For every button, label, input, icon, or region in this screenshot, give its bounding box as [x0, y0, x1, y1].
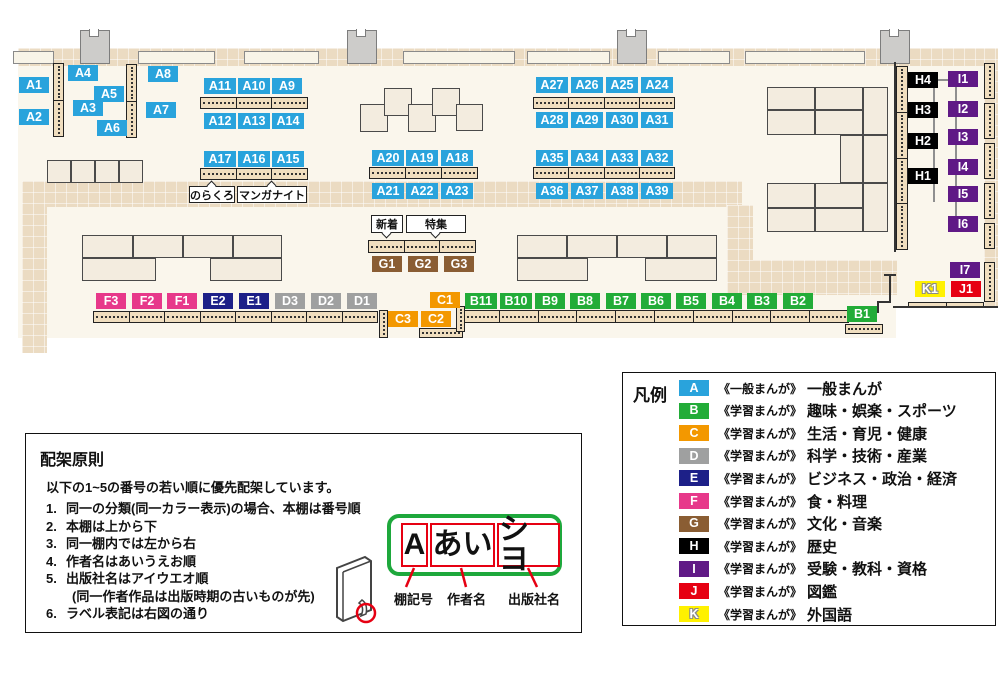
shelf-label-A34: A34 [571, 150, 603, 166]
legend-chip-J: J [679, 583, 709, 599]
shelf-note: のらくろ [189, 186, 235, 203]
bookshelf-strip [984, 262, 995, 302]
wall-line [889, 274, 891, 303]
walkway [22, 181, 47, 353]
principle-item: 5.出版社名はアイウエオ順 [46, 570, 361, 588]
principles-intro: 以下の1~5の番号の若い順に優先配架しています。 [46, 477, 339, 496]
shelf-label-A10: A10 [238, 78, 270, 94]
legend-chip-G: G [679, 516, 709, 532]
shelf-label-A3: A3 [73, 100, 103, 116]
reading-table [233, 235, 282, 258]
shelf-label-A37: A37 [571, 183, 603, 199]
bookshelf-segment [499, 311, 538, 322]
bookshelf-strip [126, 64, 137, 138]
shelf-label-A33: A33 [606, 150, 638, 166]
bookshelf-segment [271, 169, 307, 179]
reading-table [119, 160, 143, 183]
reading-table [767, 183, 815, 208]
legend-chip-I: I [679, 561, 709, 577]
shelf-label-A39: A39 [641, 183, 673, 199]
shelf-label-F1: F1 [167, 293, 197, 309]
shelf-label-I5: I5 [948, 186, 978, 202]
shelf-label-B2: B2 [783, 293, 813, 309]
shelf-label-A17: A17 [204, 151, 236, 167]
shelf-label-H2: H2 [908, 133, 938, 149]
bookshelf-strip [460, 310, 849, 323]
reading-table [47, 160, 71, 183]
legend-row-D: D《学習まんが》科学・技術・産業 [679, 447, 927, 465]
legend-qualifier: 《学習まんが》 [718, 447, 802, 464]
shelf-label-A38: A38 [606, 183, 638, 199]
bookshelf-segment [201, 169, 236, 179]
floor-mask [896, 308, 998, 340]
shelf-label-B3: B3 [747, 293, 777, 309]
wall-window [13, 51, 54, 64]
shelf-label-C3: C3 [388, 311, 418, 327]
shelf-label-C2: C2 [421, 311, 451, 327]
shelf-label-A18: A18 [441, 150, 473, 166]
reading-table [617, 235, 667, 258]
bookshelf-segment [534, 168, 568, 178]
principle-item: (同一作者作品は出版時期の古いものが先) [46, 588, 361, 606]
pillar [347, 30, 377, 64]
shelf-label-A21: A21 [372, 183, 404, 199]
wall-window [244, 51, 319, 64]
wall-line [894, 62, 896, 252]
shelf-label-I6: I6 [948, 216, 978, 232]
bookshelf-strip [379, 310, 388, 338]
legend-chip-H: H [679, 538, 709, 554]
reading-table [645, 258, 717, 281]
legend-qualifier: 《学習まんが》 [718, 515, 802, 532]
shelf-label-A31: A31 [641, 112, 673, 128]
bookshelf-segment [897, 203, 907, 249]
bookshelf-strip [984, 103, 995, 139]
shelf-label-A1: A1 [19, 77, 49, 93]
legend-category: 受験・教科・資格 [807, 558, 927, 579]
bookshelf-segment [236, 169, 272, 179]
reading-table [815, 110, 863, 135]
principle-item: 3.同一棚内では左から右 [46, 535, 361, 553]
shelf-label-F3: F3 [96, 293, 126, 309]
shelf-label-C1: C1 [430, 292, 460, 308]
shelf-label-A28: A28 [536, 112, 568, 128]
shelf-label-B5: B5 [676, 293, 706, 309]
wall-line [877, 301, 891, 303]
shelf-label-I3: I3 [948, 129, 978, 145]
reading-table [183, 235, 233, 258]
reading-table [767, 87, 815, 110]
shelf-label-A32: A32 [641, 150, 673, 166]
legend-qualifier: 《学習まんが》 [718, 560, 802, 577]
legend-qualifier: 《学習まんが》 [718, 583, 802, 600]
shelf-label-A2: A2 [19, 109, 49, 125]
bookshelf-segment [404, 241, 440, 252]
bookshelf-segment [271, 98, 307, 108]
shelf-label-A11: A11 [204, 78, 236, 94]
shelf-label-A9: A9 [272, 78, 302, 94]
legend-row-A: A《一般まんが》一般まんが [679, 379, 882, 397]
legend-panel: 凡例 A《一般まんが》一般まんがB《学習まんが》趣味・娯楽・スポーツC《学習まん… [622, 372, 996, 626]
library-floor-map-page: A1A2A4A5A3A6A8A7A11A10A9A12A13A14A17A16A… [0, 0, 1000, 700]
shelf-label-A25: A25 [606, 77, 638, 93]
shelf-label-A23: A23 [441, 183, 473, 199]
shelf-label-B7: B7 [606, 293, 636, 309]
shelf-label-B9: B9 [535, 293, 565, 309]
bookshelf-segment [380, 311, 387, 337]
principle-item: 6.ラベル表記は右図の通り [46, 605, 361, 623]
bookshelf-segment [236, 98, 272, 108]
shelf-label-J1: J1 [951, 281, 981, 297]
shelf-label-F2: F2 [132, 293, 162, 309]
legend-chip-D: D [679, 448, 709, 464]
shelf-label-A22: A22 [406, 183, 438, 199]
legend-row-C: C《学習まんが》生活・育児・健康 [679, 424, 927, 442]
principle-item: 2.本棚は上から下 [46, 518, 361, 536]
bookshelf-segment [164, 312, 200, 322]
shelf-label-A35: A35 [536, 150, 568, 166]
legend-chip-F: F [679, 493, 709, 509]
shelf-label-A24: A24 [641, 77, 673, 93]
shelf-label-B1: B1 [847, 306, 877, 322]
principles-list: 1.同一の分類(同一カラー表示)の場合、本棚は番号順2.本棚は上から下3.同一棚… [46, 500, 361, 623]
bookshelf-strip [984, 143, 995, 179]
bookshelf-segment [306, 312, 342, 322]
shelf-label-A16: A16 [238, 151, 270, 167]
bookshelf-segment [201, 98, 236, 108]
reading-table [863, 183, 888, 232]
shelf-label-A6: A6 [97, 120, 127, 136]
reading-table [863, 87, 888, 135]
principle-item: 4.作者名はあいうえお順 [46, 553, 361, 571]
reading-table [840, 135, 863, 183]
bookshelf-segment [732, 311, 771, 322]
pillar [80, 30, 110, 64]
reading-table [767, 208, 815, 232]
wall-window [745, 51, 865, 64]
reading-table [82, 235, 133, 258]
bookshelf-segment [639, 168, 674, 178]
shelf-label-A36: A36 [536, 183, 568, 199]
legend-qualifier: 《学習まんが》 [718, 538, 802, 555]
shelf-label-E2: E2 [203, 293, 233, 309]
bookshelf-strip [845, 324, 883, 334]
bookshelf-segment [271, 312, 307, 322]
legend-row-F: F《学習まんが》食・料理 [679, 492, 867, 510]
walkway [727, 260, 897, 295]
reading-table [456, 104, 483, 131]
shelf-label-I7: I7 [950, 262, 980, 278]
wall-window [403, 51, 515, 64]
shelf-label-A29: A29 [571, 112, 603, 128]
bookshelf-strip [533, 167, 675, 179]
shelf-label-B11: B11 [465, 293, 497, 309]
bookshelf-strip [984, 63, 995, 99]
wall-window [138, 51, 215, 64]
legend-qualifier: 《学習まんが》 [718, 402, 802, 419]
legend-chip-K: K [679, 606, 709, 622]
shelf-label-G1: G1 [372, 256, 402, 272]
bookshelf-strip [533, 97, 675, 109]
bookshelf-segment [576, 311, 615, 322]
bookshelf-strip [456, 306, 465, 332]
legend-row-H: H《学習まんが》歴史 [679, 537, 837, 555]
reading-table [133, 235, 183, 258]
bookshelf-strip [200, 168, 308, 180]
reading-table [767, 110, 815, 135]
bookshelf-strip [984, 183, 995, 219]
shelf-label-D2: D2 [311, 293, 341, 309]
shelf-label-B4: B4 [712, 293, 742, 309]
bookshelf-strip [93, 311, 378, 323]
legend-row-I: I《学習まんが》受験・教科・資格 [679, 560, 927, 578]
bookshelf-strip [984, 223, 995, 249]
bookshelf-segment [809, 311, 848, 322]
shelf-note: 特集 [406, 215, 466, 233]
bookshelf-segment [94, 312, 129, 322]
shelf-label-E1: E1 [239, 293, 269, 309]
shelf-label-H3: H3 [908, 102, 938, 118]
legend-row-J: J《学習まんが》図鑑 [679, 582, 837, 600]
bookshelf-segment [985, 184, 994, 218]
pillar [880, 30, 910, 64]
legend-qualifier: 《学習まんが》 [718, 425, 802, 442]
shelf-label-I2: I2 [948, 101, 978, 117]
bookshelf-segment [235, 312, 271, 322]
shelf-label-A14: A14 [272, 113, 304, 129]
bookshelf-segment [568, 168, 603, 178]
bookshelf-segment [604, 168, 639, 178]
shelf-label-H1: H1 [908, 168, 938, 184]
reading-table [567, 235, 617, 258]
reading-table [517, 235, 567, 258]
shelf-label-D1: D1 [347, 293, 377, 309]
bookshelf-segment [127, 101, 136, 138]
shelf-label-A20: A20 [372, 150, 404, 166]
bookshelf-segment [639, 98, 674, 108]
legend-category: 食・料理 [807, 491, 867, 512]
reading-table [95, 160, 119, 183]
bookshelf-segment [985, 144, 994, 178]
legend-category: ビジネス・政治・経済 [807, 468, 957, 489]
legend-category: 歴史 [807, 536, 837, 557]
shelf-label-A26: A26 [571, 77, 603, 93]
shelf-label-A13: A13 [238, 113, 270, 129]
shelf-label-A19: A19 [406, 150, 438, 166]
shelf-label-B6: B6 [641, 293, 671, 309]
bookshelf-segment [54, 100, 63, 137]
bookshelf-segment [370, 168, 405, 178]
bookshelf-segment [369, 241, 404, 252]
shelf-label-A27: A27 [536, 77, 568, 93]
bookshelf-strip [896, 66, 908, 250]
bookshelf-segment [457, 307, 464, 331]
shelf-label-A8: A8 [148, 66, 178, 82]
bookshelf-segment [985, 224, 994, 248]
shelf-note: マンガナイト [237, 186, 307, 203]
bookshelf-segment [568, 98, 603, 108]
shelf-label-I1: I1 [948, 71, 978, 87]
bookshelf-segment [461, 311, 499, 322]
principles-title: 配架原則 [40, 446, 104, 470]
bookshelf-segment [693, 311, 732, 322]
legend-category: 文化・音楽 [807, 513, 882, 534]
shelf-note: 新着 [371, 215, 403, 233]
shelf-label-B10: B10 [500, 293, 532, 309]
legend-chip-C: C [679, 425, 709, 441]
legend-category: 趣味・娯楽・スポーツ [807, 400, 957, 421]
bookshelf-segment [897, 158, 907, 204]
wall-line [877, 301, 879, 313]
bookshelf-segment [846, 325, 882, 333]
bookshelf-strip [200, 97, 308, 109]
bookshelf-strip [368, 240, 476, 253]
shelf-label-A15: A15 [272, 151, 304, 167]
legend-category: 図鑑 [807, 581, 837, 602]
legend-qualifier: 《学習まんが》 [718, 470, 802, 487]
bookshelf-segment [897, 112, 907, 158]
shelf-label-D3: D3 [275, 293, 305, 309]
shelf-label-G3: G3 [444, 256, 474, 272]
legend-qualifier: 《学習まんが》 [718, 606, 802, 623]
shelf-label-I4: I4 [948, 159, 978, 175]
reading-table [210, 258, 282, 281]
reading-table [815, 87, 863, 110]
reading-table [71, 160, 95, 183]
wall-window [658, 51, 730, 64]
bookshelf-segment [405, 168, 441, 178]
legend-row-K: K《学習まんが》外国語 [679, 605, 852, 623]
shelf-label-G2: G2 [408, 256, 438, 272]
legend-title: 凡例 [633, 381, 667, 406]
legend-row-E: E《学習まんが》ビジネス・政治・経済 [679, 469, 957, 487]
legend-row-B: B《学習まんが》趣味・娯楽・スポーツ [679, 402, 957, 420]
pillar [617, 30, 647, 64]
bookshelf-segment [897, 67, 907, 112]
legend-qualifier: 《一般まんが》 [718, 380, 802, 397]
book-illustration [320, 540, 580, 630]
legend-category: 外国語 [807, 604, 852, 625]
bookshelf-segment [770, 311, 809, 322]
reading-table [517, 258, 588, 281]
bookshelf-segment [441, 168, 477, 178]
shelf-label-A7: A7 [146, 102, 176, 118]
bookshelf-segment [985, 64, 994, 98]
shelf-label-H4: H4 [908, 72, 938, 88]
legend-chip-A: A [679, 380, 709, 396]
shelf-label-A12: A12 [204, 113, 236, 129]
bookshelf-segment [985, 104, 994, 138]
bookshelf-segment [604, 98, 639, 108]
legend-category: 一般まんが [807, 378, 882, 399]
bookshelf-segment [654, 311, 693, 322]
shelf-label-A30: A30 [606, 112, 638, 128]
wall-window [527, 51, 610, 64]
bookshelf-segment [615, 311, 654, 322]
legend-row-G: G《学習まんが》文化・音楽 [679, 515, 882, 533]
bookshelf-segment [985, 263, 994, 301]
bookshelf-segment [127, 65, 136, 101]
shelf-label-B8: B8 [570, 293, 600, 309]
bookshelf-segment [439, 241, 475, 252]
principle-item: 1.同一の分類(同一カラー表示)の場合、本棚は番号順 [46, 500, 361, 518]
bookshelf-segment [342, 312, 378, 322]
legend-chip-E: E [679, 470, 709, 486]
shelf-label-A4: A4 [68, 65, 98, 81]
legend-chip-B: B [679, 403, 709, 419]
reading-table [815, 183, 863, 208]
reading-table [82, 258, 156, 281]
bookshelf-segment [54, 64, 63, 100]
bookshelf-strip [369, 167, 478, 179]
legend-category: 科学・技術・産業 [807, 445, 927, 466]
reading-table [815, 208, 863, 232]
bookshelf-strip [53, 63, 64, 137]
reading-table [863, 135, 888, 183]
legend-category: 生活・育児・健康 [807, 423, 927, 444]
reading-table [667, 235, 717, 258]
legend-qualifier: 《学習まんが》 [718, 493, 802, 510]
bookshelf-segment [538, 311, 577, 322]
bookshelf-segment [534, 98, 568, 108]
bookshelf-segment [200, 312, 236, 322]
bookshelf-segment [129, 312, 165, 322]
shelf-label-K1: K1 [915, 281, 945, 297]
